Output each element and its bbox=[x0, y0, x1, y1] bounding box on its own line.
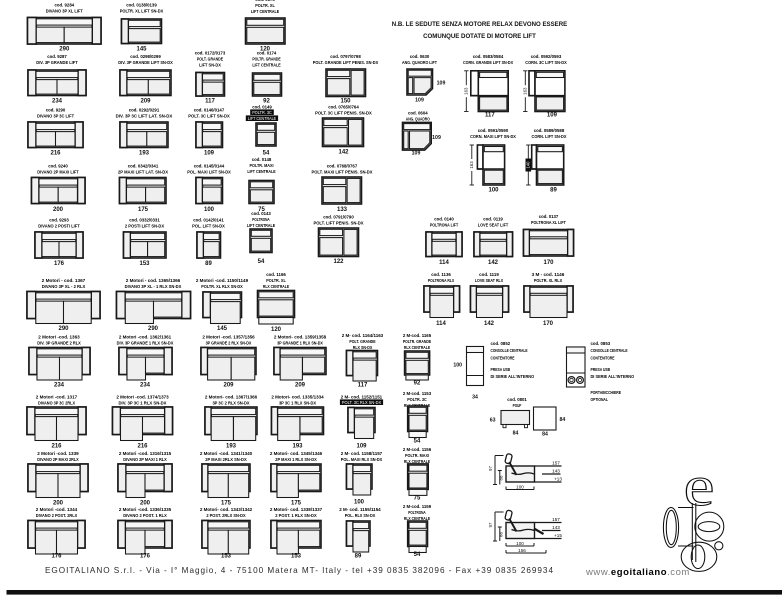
svg-text:2 Motori- cod. 1367/1366: 2 Motori- cod. 1367/1366 bbox=[205, 394, 258, 399]
svg-text:2 Motori -cod. 1317: 2 Motori -cod. 1317 bbox=[36, 394, 78, 399]
svg-text:109: 109 bbox=[437, 81, 446, 87]
svg-text:POLTR. 3C: POLTR. 3C bbox=[407, 397, 427, 402]
svg-text:LIFT CENTRALE: LIFT CENTRALE bbox=[248, 116, 276, 121]
svg-text:114: 114 bbox=[436, 321, 446, 327]
svg-text:3P GRANDE 1 RLX SN-DX: 3P GRANDE 1 RLX SN-DX bbox=[277, 340, 323, 345]
svg-text:142: 142 bbox=[488, 260, 499, 266]
svg-text:54: 54 bbox=[258, 259, 265, 265]
svg-text:2 M- cod. 1164/1163: 2 M- cod. 1164/1163 bbox=[342, 333, 384, 338]
svg-text:2 Motori -cod. 1363: 2 Motori -cod. 1363 bbox=[38, 334, 80, 339]
svg-text:cod. 0174: cod. 0174 bbox=[257, 50, 277, 55]
svg-text:CORN. 3C LIFT SN-DX: CORN. 3C LIFT SN-DX bbox=[525, 60, 566, 65]
svg-text:193: 193 bbox=[226, 443, 237, 449]
svg-text:157: 157 bbox=[552, 517, 560, 522]
svg-text:PRESA USB: PRESA USB bbox=[591, 367, 611, 372]
svg-text:2 Motori -cod. 1150/1149: 2 Motori -cod. 1150/1149 bbox=[196, 278, 249, 283]
svg-text:2 Motori -cod. 1357/1356: 2 Motori -cod. 1357/1356 bbox=[202, 334, 255, 339]
svg-text:DIVANO 3P XL - 1 RLX SN-DX: DIVANO 3P XL - 1 RLX SN-DX bbox=[125, 284, 182, 289]
svg-text:cod. 9287: cod. 9287 bbox=[47, 54, 67, 59]
svg-text:100: 100 bbox=[354, 499, 365, 505]
svg-text:cod. 0801: cod. 0801 bbox=[507, 397, 527, 402]
svg-text:POLTRONA XL LIFT: POLTRONA XL LIFT bbox=[531, 220, 566, 225]
svg-text:153: 153 bbox=[221, 554, 232, 560]
svg-text:117: 117 bbox=[485, 113, 495, 119]
svg-text:163: 163 bbox=[523, 87, 528, 95]
svg-text:3 M - cod. 1146: 3 M - cod. 1146 bbox=[532, 272, 565, 277]
svg-text:DIVANO 2 POST. 1 RLX: DIVANO 2 POST. 1 RLX bbox=[123, 513, 167, 518]
svg-text:234: 234 bbox=[54, 382, 65, 388]
svg-text:DIV. 3P GRANDE LIFT: DIV. 3P GRANDE LIFT bbox=[36, 60, 78, 65]
svg-text:117: 117 bbox=[205, 98, 215, 104]
svg-text:2 POST. 1 RLX SN-DX: 2 POST. 1 RLX SN-DX bbox=[275, 513, 316, 518]
svg-text:89: 89 bbox=[355, 553, 362, 559]
svg-text:200: 200 bbox=[53, 207, 64, 213]
svg-text:RLX CENTRALE: RLX CENTRALE bbox=[404, 345, 430, 350]
svg-text:LIFT CENTRALE: LIFT CENTRALE bbox=[252, 62, 280, 67]
svg-text:DIV. 3P GRANDE 2 RLX: DIV. 3P GRANDE 2 RLX bbox=[37, 340, 81, 345]
svg-text:2 M-cod. 1159: 2 M-cod. 1159 bbox=[403, 504, 432, 509]
svg-text:CORN. GRANDE LIFT SN-DX: CORN. GRANDE LIFT SN-DX bbox=[463, 60, 513, 65]
svg-text:cod. 0797/0798: cod. 0797/0798 bbox=[330, 54, 361, 59]
svg-text:100: 100 bbox=[453, 363, 462, 369]
svg-text:RLX CENTRALE: RLX CENTRALE bbox=[404, 516, 430, 521]
svg-text:88: 88 bbox=[498, 475, 503, 480]
svg-text:DI SERIE ALL'INTERNO: DI SERIE ALL'INTERNO bbox=[591, 374, 635, 379]
svg-text:DIV. 3P GRANDE 1 RLX SN-DX: DIV. 3P GRANDE 1 RLX SN-DX bbox=[117, 340, 174, 345]
svg-text:2 M- cod. 1152/1151: 2 M- cod. 1152/1151 bbox=[341, 394, 383, 399]
svg-text:DIVANO 2P MAXI LIFT: DIVANO 2P MAXI LIFT bbox=[37, 169, 79, 174]
svg-text:cod. 0630: cod. 0630 bbox=[410, 54, 430, 59]
svg-text:84: 84 bbox=[513, 431, 519, 437]
svg-text:POLTR. MAXI: POLTR. MAXI bbox=[405, 453, 429, 458]
svg-text:3P 3C 1 RLX SN-DX: 3P 3C 1 RLX SN-DX bbox=[279, 400, 316, 405]
svg-text:175: 175 bbox=[291, 500, 302, 506]
svg-text:N.B. LE SEDUTE SENZA MOTORE RE: N.B. LE SEDUTE SENZA MOTORE RELAX DEVONO… bbox=[392, 21, 567, 28]
svg-text:cod. 0138/0139: cod. 0138/0139 bbox=[126, 2, 157, 7]
svg-text:109: 109 bbox=[356, 443, 367, 449]
svg-text:2 Motori - cod. 1367: 2 Motori - cod. 1367 bbox=[42, 278, 86, 283]
svg-text:88: 88 bbox=[498, 532, 503, 537]
svg-text:290: 290 bbox=[58, 326, 69, 332]
svg-text:122: 122 bbox=[333, 259, 344, 265]
svg-text:109: 109 bbox=[415, 98, 424, 104]
svg-text:RLX CENTRALE: RLX CENTRALE bbox=[404, 459, 430, 464]
svg-text:LIFT CENTRALE: LIFT CENTRALE bbox=[247, 223, 275, 228]
svg-text:cod. 9284: cod. 9284 bbox=[55, 2, 75, 7]
svg-text:97: 97 bbox=[488, 466, 493, 471]
svg-text:LIFT CENTRALE: LIFT CENTRALE bbox=[251, 9, 279, 14]
svg-text:DIV. 3P 3C LIFT LAT. SN-DX: DIV. 3P 3C LIFT LAT. SN-DX bbox=[116, 113, 173, 118]
svg-text:109: 109 bbox=[432, 135, 441, 141]
svg-text:92: 92 bbox=[414, 381, 421, 387]
svg-text:100: 100 bbox=[516, 485, 524, 490]
svg-text:209: 209 bbox=[140, 98, 151, 104]
svg-text:175: 175 bbox=[221, 500, 232, 506]
svg-text:2 M-cod. 1165: 2 M-cod. 1165 bbox=[403, 333, 432, 338]
svg-text:2P MAXI 2RLX SN-DX: 2P MAXI 2RLX SN-DX bbox=[205, 457, 246, 462]
svg-text:POLT. LIFT PENIS. SN-DX: POLT. LIFT PENIS. SN-DX bbox=[313, 220, 363, 225]
svg-text:175: 175 bbox=[138, 207, 149, 213]
svg-text:290: 290 bbox=[148, 326, 159, 332]
svg-text:54: 54 bbox=[414, 552, 421, 558]
svg-text:DIVANO 3P XL LIFT: DIVANO 3P XL LIFT bbox=[46, 8, 83, 13]
svg-text:157: 157 bbox=[552, 461, 560, 466]
svg-text:89: 89 bbox=[550, 188, 557, 194]
svg-text:COMUNQUE DOTATE DI MOTORE LIFT: COMUNQUE DOTATE DI MOTORE LIFT bbox=[423, 33, 536, 40]
svg-text:140: 140 bbox=[526, 161, 531, 169]
svg-text:216: 216 bbox=[51, 443, 62, 449]
svg-text:DI SERIE ALL'INTERNO: DI SERIE ALL'INTERNO bbox=[491, 374, 535, 379]
svg-text:CORN. MAXI LIFT SN-DX: CORN. MAXI LIFT SN-DX bbox=[470, 134, 516, 139]
svg-text:3P 3C 2 RLX SN-DX: 3P 3C 2 RLX SN-DX bbox=[212, 400, 249, 405]
svg-text:cod. 0591/0590: cod. 0591/0590 bbox=[478, 128, 509, 133]
svg-text:176: 176 bbox=[54, 261, 65, 267]
svg-text:POL. RLX SN-DX: POL. RLX SN-DX bbox=[345, 513, 376, 518]
svg-text:POLTR. GRANDE: POLTR. GRANDE bbox=[403, 339, 431, 344]
svg-text:DIV. 3P GRANDE LIFT SN-DX: DIV. 3P GRANDE LIFT SN-DX bbox=[118, 60, 173, 65]
svg-text:176: 176 bbox=[140, 554, 151, 560]
svg-text:www.egoitaliano.com: www.egoitaliano.com bbox=[585, 567, 690, 578]
svg-text:143: 143 bbox=[552, 469, 560, 474]
svg-text:DIVANO 2 POST. 2RLX: DIVANO 2 POST. 2RLX bbox=[36, 513, 77, 518]
svg-text:LOVE SEAT RLX: LOVE SEAT RLX bbox=[475, 278, 503, 283]
svg-text:cod. 0175: cod. 0175 bbox=[255, 0, 275, 2]
svg-text:CONSOLLE CENTRALE: CONSOLLE CENTRALE bbox=[591, 348, 628, 353]
svg-text:POLT. MAXI LIFT PENIS. SN-DX: POLT. MAXI LIFT PENIS. SN-DX bbox=[312, 169, 373, 174]
svg-text:143: 143 bbox=[552, 525, 560, 530]
svg-text:cod. 0342/0341: cod. 0342/0341 bbox=[128, 163, 159, 168]
svg-text:POLT. GRANDE: POLT. GRANDE bbox=[197, 56, 223, 61]
svg-text:234: 234 bbox=[140, 382, 151, 388]
svg-text:ANG. QUADRO LIFT: ANG. QUADRO LIFT bbox=[402, 60, 437, 65]
svg-text:cod. 0852: cod. 0852 bbox=[491, 341, 511, 346]
svg-text:cod. 0768/0767: cod. 0768/0767 bbox=[327, 163, 358, 168]
svg-text:109: 109 bbox=[547, 113, 558, 119]
svg-text:209: 209 bbox=[295, 382, 306, 388]
svg-text:142: 142 bbox=[484, 321, 495, 327]
svg-text:170: 170 bbox=[543, 260, 554, 266]
svg-text:cod. 0172/0173: cod. 0172/0173 bbox=[195, 50, 226, 55]
svg-text:89: 89 bbox=[205, 261, 212, 267]
svg-text:POLTR. XL: POLTR. XL bbox=[255, 3, 275, 8]
svg-text:cod. 0604: cod. 0604 bbox=[408, 110, 428, 115]
svg-text:2 M-cod. 1153: 2 M-cod. 1153 bbox=[403, 391, 432, 396]
svg-text:+13: +13 bbox=[554, 477, 562, 482]
svg-text:PORTABICCHIERE: PORTABICCHIERE bbox=[591, 390, 622, 395]
svg-text:117: 117 bbox=[358, 382, 368, 388]
svg-text:2 M- cod. 1158/1157: 2 M- cod. 1158/1157 bbox=[341, 451, 383, 456]
svg-text:142: 142 bbox=[338, 149, 349, 155]
svg-text:156: 156 bbox=[518, 548, 526, 553]
svg-text:2 Motori -cod. 1344: 2 Motori -cod. 1344 bbox=[36, 507, 78, 512]
svg-text:DIVANO 3P 3C LIFT: DIVANO 3P 3C LIFT bbox=[37, 113, 74, 118]
svg-text:cod. 0592/0593: cod. 0592/0593 bbox=[531, 54, 562, 59]
svg-text:RLX SN-DX: RLX SN-DX bbox=[353, 345, 373, 350]
svg-text:POLTRONA: POLTRONA bbox=[252, 217, 270, 222]
svg-text:cod. 1119: cod. 1119 bbox=[479, 272, 499, 277]
svg-text:CONTENITORE: CONTENITORE bbox=[591, 355, 615, 360]
svg-text:EGOITALIANO S.r.l. - Via - I°: EGOITALIANO S.r.l. - Via - I° Maggio, 4 … bbox=[45, 566, 553, 575]
svg-text:2 Motori- cod. 1335/1334: 2 Motori- cod. 1335/1334 bbox=[271, 394, 324, 399]
svg-text:84: 84 bbox=[560, 417, 566, 423]
svg-text:100: 100 bbox=[488, 188, 499, 194]
svg-text:176: 176 bbox=[51, 554, 62, 560]
svg-text:153: 153 bbox=[291, 554, 302, 560]
svg-text:163: 163 bbox=[469, 161, 474, 169]
svg-text:75: 75 bbox=[414, 495, 421, 501]
svg-text:cod. 0143: cod. 0143 bbox=[251, 211, 271, 216]
svg-text:CORN. LIFT SN-DX: CORN. LIFT SN-DX bbox=[532, 134, 567, 139]
svg-text:DIVANO 3P 3C 2RLX: DIVANO 3P 3C 2RLX bbox=[38, 400, 75, 405]
svg-text:234: 234 bbox=[52, 98, 63, 104]
svg-text:cod. 0332/0331: cod. 0332/0331 bbox=[129, 217, 160, 222]
svg-text:POLTR. XL RLX: POLTR. XL RLX bbox=[534, 278, 562, 283]
svg-text:POLT. GRANDE LIFT PENIS. SN-DX: POLT. GRANDE LIFT PENIS. SN-DX bbox=[313, 60, 378, 65]
svg-text:cod. 0791/0790: cod. 0791/0790 bbox=[323, 214, 354, 219]
svg-text:145: 145 bbox=[217, 326, 228, 332]
svg-text:133: 133 bbox=[337, 207, 348, 213]
svg-text:84: 84 bbox=[542, 432, 548, 438]
svg-text:cod. 0853: cod. 0853 bbox=[591, 341, 611, 346]
svg-text:cod. 0589/0588: cod. 0589/0588 bbox=[534, 128, 565, 133]
svg-text:cod. 0148: cod. 0148 bbox=[252, 157, 272, 162]
svg-text:100: 100 bbox=[516, 541, 524, 546]
svg-text:RLX CENTRALE: RLX CENTRALE bbox=[263, 284, 289, 289]
svg-text:109: 109 bbox=[204, 150, 215, 156]
svg-text:209: 209 bbox=[223, 382, 234, 388]
svg-text:2 Motori- cod. 1359/1358: 2 Motori- cod. 1359/1358 bbox=[274, 334, 327, 339]
svg-text:2 Motori -cod. 1339: 2 Motori -cod. 1339 bbox=[37, 451, 79, 456]
svg-text:+15: +15 bbox=[554, 533, 562, 538]
svg-text:2 Motori -cod. 1316/1315: 2 Motori -cod. 1316/1315 bbox=[119, 451, 172, 456]
svg-text:200: 200 bbox=[53, 500, 64, 506]
svg-text:2 Motori- cod. 1345/1346: 2 Motori- cod. 1345/1346 bbox=[270, 451, 323, 456]
svg-text:cod. 0298/0299: cod. 0298/0299 bbox=[130, 54, 161, 59]
svg-text:170: 170 bbox=[543, 321, 554, 327]
svg-text:cod. 0140: cod. 0140 bbox=[434, 216, 454, 221]
svg-text:DIVANO 2P MAXI 2RLX: DIVANO 2P MAXI 2RLX bbox=[37, 457, 78, 462]
svg-text:cod. 0137: cod. 0137 bbox=[539, 214, 559, 219]
svg-text:2 Motori -cod. 1341/1340: 2 Motori -cod. 1341/1340 bbox=[200, 451, 253, 456]
svg-text:cod. 0119: cod. 0119 bbox=[483, 216, 503, 221]
svg-text:2P MAXI LIFT LAT. SN-DX: 2P MAXI LIFT LAT. SN-DX bbox=[118, 169, 168, 174]
svg-text:216: 216 bbox=[50, 150, 61, 156]
svg-text:2 POSTI LIFT SN-DX: 2 POSTI LIFT SN-DX bbox=[125, 223, 164, 228]
svg-text:97: 97 bbox=[488, 522, 493, 527]
svg-text:POLTR. XL: POLTR. XL bbox=[266, 278, 286, 283]
svg-text:POL. MAXI RLX SN-DX: POL. MAXI RLX SN-DX bbox=[341, 457, 382, 462]
svg-text:cod. 0292/0291: cod. 0292/0291 bbox=[129, 107, 160, 112]
svg-text:LOVE SEAT LIFT: LOVE SEAT LIFT bbox=[478, 222, 509, 227]
svg-text:POLTR. MAXI: POLTR. MAXI bbox=[250, 163, 274, 168]
svg-text:200: 200 bbox=[140, 500, 151, 506]
svg-text:POLT. 3C RLX SN-DX: POLT. 3C RLX SN-DX bbox=[342, 400, 381, 405]
svg-text:2 Motori -cod. 1362/1361: 2 Motori -cod. 1362/1361 bbox=[119, 334, 172, 339]
svg-text:2 Motori -cod. 1336/1335: 2 Motori -cod. 1336/1335 bbox=[119, 507, 172, 512]
svg-text:DIV. 3P 3C 1 RLX SN-DX: DIV. 3P 3C 1 RLX SN-DX bbox=[119, 400, 167, 405]
svg-text:cod. 0765/0764: cod. 0765/0764 bbox=[328, 104, 359, 109]
svg-text:POLTR. XL RLX SN-DX: POLTR. XL RLX SN-DX bbox=[201, 284, 242, 289]
svg-text:PRESA USB: PRESA USB bbox=[491, 367, 511, 372]
svg-text:2 Motori -cod. 1374/1373: 2 Motori -cod. 1374/1373 bbox=[116, 394, 169, 399]
svg-text:63: 63 bbox=[490, 418, 496, 424]
svg-text:2 M-cod. 1156: 2 M-cod. 1156 bbox=[403, 447, 432, 452]
svg-text:OPTIONAL: OPTIONAL bbox=[591, 397, 609, 402]
svg-text:290: 290 bbox=[59, 46, 70, 52]
svg-text:54: 54 bbox=[263, 150, 270, 156]
svg-text:POLTR. GRANDE: POLTR. GRANDE bbox=[252, 56, 280, 61]
svg-text:193: 193 bbox=[139, 150, 150, 156]
svg-text:109: 109 bbox=[412, 151, 421, 157]
svg-text:POLTRONA LIFT: POLTRONA LIFT bbox=[430, 222, 459, 227]
svg-text:POLT. 3C LIFT SN-DX: POLT. 3C LIFT SN-DX bbox=[188, 113, 229, 118]
svg-text:cod. 0142/0141: cod. 0142/0141 bbox=[193, 217, 224, 222]
svg-text:cod. 9290: cod. 9290 bbox=[46, 107, 66, 112]
svg-text:ANG. QUADRO: ANG. QUADRO bbox=[406, 116, 430, 121]
svg-text:163: 163 bbox=[464, 87, 469, 95]
svg-text:216: 216 bbox=[137, 443, 148, 449]
svg-text:DIVANO 3P XL - 2 RLX: DIVANO 3P XL - 2 RLX bbox=[42, 284, 86, 289]
svg-text:cod. 0146/0147: cod. 0146/0147 bbox=[194, 107, 225, 112]
svg-text:153: 153 bbox=[139, 261, 150, 267]
svg-text:DIVANO 2 POSTI LIFT: DIVANO 2 POSTI LIFT bbox=[38, 223, 80, 228]
svg-text:POLTR. XL LIFT SN-DX: POLTR. XL LIFT SN-DX bbox=[120, 8, 164, 13]
svg-text:2 M- cod. 1155/1154: 2 M- cod. 1155/1154 bbox=[339, 507, 381, 512]
svg-text:2 POST. 2RLX SN-DX: 2 POST. 2RLX SN-DX bbox=[206, 513, 245, 518]
svg-text:LIFT SN-DX: LIFT SN-DX bbox=[199, 62, 221, 67]
svg-text:DIVANO 2P MAXI 1 RLX: DIVANO 2P MAXI 1 RLX bbox=[123, 457, 167, 462]
svg-text:POL. MAXI LIFT SN-DX: POL. MAXI LIFT SN-DX bbox=[187, 169, 231, 174]
svg-text:POLT. GRANDE: POLT. GRANDE bbox=[349, 339, 375, 344]
svg-text:2 Motori - cod. 1365/1366: 2 Motori - cod. 1365/1366 bbox=[126, 278, 181, 283]
svg-text:cod. 9293: cod. 9293 bbox=[49, 217, 69, 222]
svg-text:cod. 0583/0584: cod. 0583/0584 bbox=[473, 54, 504, 59]
svg-text:POLTRONA: POLTRONA bbox=[408, 510, 426, 515]
svg-text:CONTENITORE: CONTENITORE bbox=[491, 355, 515, 360]
svg-text:34: 34 bbox=[472, 395, 478, 401]
svg-text:cod. 0145/0144: cod. 0145/0144 bbox=[194, 163, 225, 168]
svg-text:2 Motori- cod. 1343/1342: 2 Motori- cod. 1343/1342 bbox=[200, 507, 253, 512]
svg-text:POLT. 3C LIFT PENIS. SN-DX: POLT. 3C LIFT PENIS. SN-DX bbox=[315, 110, 372, 115]
svg-text:POLTRONA RLX: POLTRONA RLX bbox=[428, 278, 454, 283]
svg-text:cod. 1166: cod. 1166 bbox=[266, 272, 286, 277]
svg-text:2 Motori- cod. 1338/1337: 2 Motori- cod. 1338/1337 bbox=[270, 507, 323, 512]
svg-text:CONSOLLE CENTRALE: CONSOLLE CENTRALE bbox=[491, 348, 528, 353]
svg-text:145: 145 bbox=[136, 46, 147, 52]
svg-text:cod. 1136: cod. 1136 bbox=[431, 272, 451, 277]
svg-text:120: 120 bbox=[271, 327, 282, 333]
svg-text:114: 114 bbox=[439, 260, 449, 266]
svg-text:POUF: POUF bbox=[513, 403, 522, 408]
svg-text:2P MAXI 1 RLX SN-DX: 2P MAXI 1 RLX SN-DX bbox=[275, 457, 316, 462]
svg-text:cod. 0149: cod. 0149 bbox=[252, 104, 272, 109]
svg-text:LIFT CENTRALE: LIFT CENTRALE bbox=[247, 169, 275, 174]
svg-text:193: 193 bbox=[292, 443, 303, 449]
svg-text:cod. 9240: cod. 9240 bbox=[48, 163, 68, 168]
svg-text:POL. LIFT SN-DX: POL. LIFT SN-DX bbox=[192, 223, 225, 228]
svg-text:3P GRANDE 2 RLX SN-DX: 3P GRANDE 2 RLX SN-DX bbox=[206, 340, 252, 345]
svg-text:POLTR. 3C: POLTR. 3C bbox=[252, 110, 272, 115]
svg-text:100: 100 bbox=[204, 207, 215, 213]
svg-text:54: 54 bbox=[414, 439, 421, 445]
